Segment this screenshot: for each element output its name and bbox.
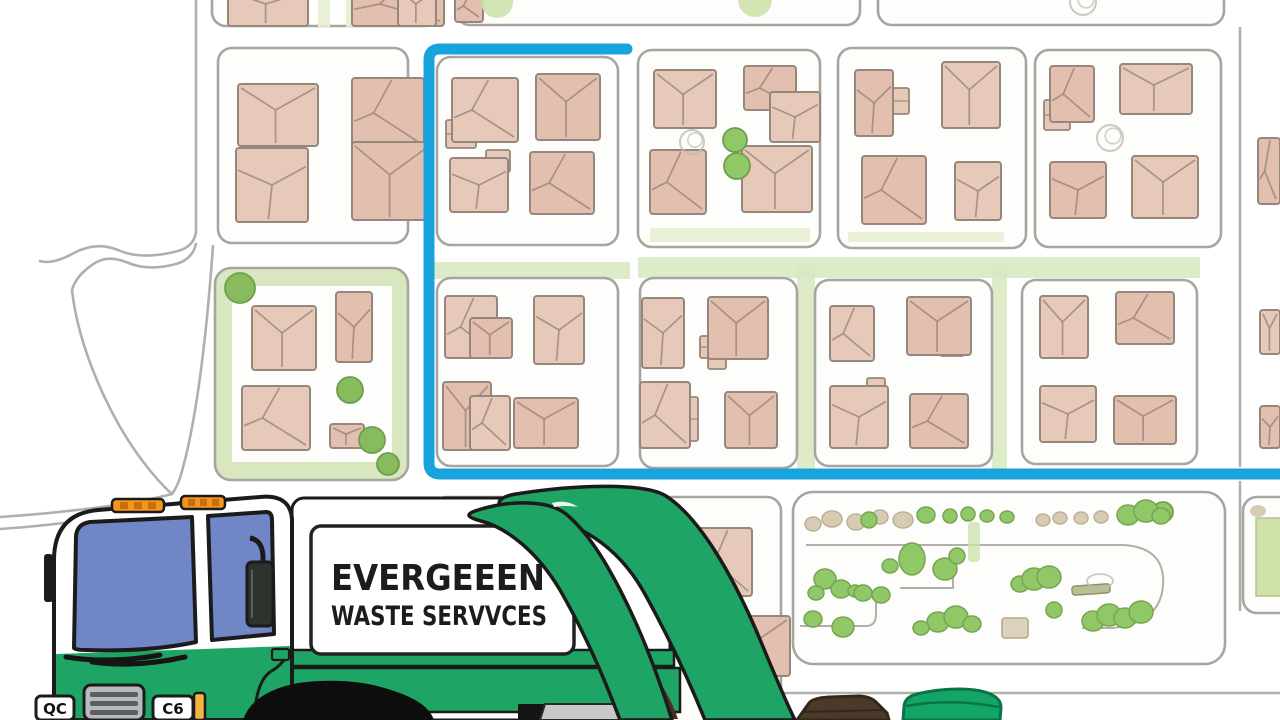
map-block	[878, 0, 1224, 25]
park-tree	[808, 586, 824, 600]
brown-waste-bin	[797, 696, 889, 720]
license-plate-left-text: QC	[43, 700, 67, 718]
illustration-stage: EVERGEEEN WASTE SERVVCES	[0, 0, 1280, 720]
roof-light-tick	[120, 502, 128, 509]
door-handle	[272, 649, 289, 660]
park-shrub-tan	[822, 511, 842, 527]
license-plate-right-text: C6	[162, 700, 183, 718]
park-tree	[832, 617, 854, 637]
park-tree	[1037, 566, 1061, 588]
roof-ridge	[1269, 427, 1270, 445]
park-shrub-tan	[805, 517, 821, 531]
park-tree	[861, 512, 877, 528]
park-kiosk	[1002, 618, 1028, 638]
grass-strip	[427, 262, 630, 279]
park-tree	[917, 507, 935, 523]
park-grass-strip	[968, 522, 980, 562]
grass-tint	[318, 0, 330, 27]
tree	[359, 427, 385, 453]
park-tree	[963, 616, 981, 632]
roof-light-tick	[212, 499, 219, 506]
windshield	[74, 517, 196, 650]
roof-light-tick	[188, 499, 195, 506]
park-tree	[899, 543, 925, 575]
grass-strip	[992, 265, 1007, 472]
grille-slat	[90, 692, 138, 697]
park-tree	[949, 548, 965, 564]
grille-slat	[90, 701, 138, 706]
map-block	[456, 0, 860, 25]
company-name: EVERGEEEN	[331, 558, 545, 599]
house	[455, 0, 483, 22]
park-shrub-tan	[1036, 514, 1050, 526]
park-tree	[1152, 508, 1170, 524]
tree	[377, 453, 399, 475]
left-mirror-stub	[44, 554, 53, 602]
tree	[337, 377, 363, 403]
park-shrub-tan	[1053, 512, 1067, 524]
park-shrub-tan	[893, 512, 913, 528]
grass-strip	[638, 257, 1200, 278]
grass-tint	[848, 232, 1004, 242]
road	[72, 290, 172, 494]
park-shrub-tan	[1094, 511, 1108, 523]
park-tree	[913, 621, 929, 635]
park-shrub-tan	[1074, 512, 1088, 524]
roof-light-tick	[200, 499, 207, 506]
road	[172, 246, 213, 494]
road	[40, 232, 196, 262]
neighborhood-map-illustration: EVERGEEEN WASTE SERVVCES	[0, 0, 1280, 720]
roof-light-tick	[148, 502, 156, 509]
park-tree	[961, 507, 975, 521]
park-tree	[943, 509, 957, 523]
park-tree	[980, 510, 994, 522]
side-yard	[1256, 518, 1280, 596]
house	[352, 78, 424, 148]
park-tree	[872, 587, 890, 603]
park-tree	[1046, 602, 1062, 618]
tree	[723, 128, 747, 152]
side-shrub	[1250, 505, 1266, 517]
park-tree	[882, 559, 898, 573]
grille-slat	[90, 710, 138, 715]
grass-strip	[797, 265, 815, 472]
park-tree	[1129, 601, 1153, 623]
corner-marker-light	[194, 693, 205, 720]
park-tree	[854, 585, 872, 601]
roof-light-tick	[134, 502, 142, 509]
company-subtitle: WASTE SERVVCES	[331, 601, 547, 632]
park-tree	[1000, 511, 1014, 523]
grass-tint	[650, 228, 810, 242]
park-tree	[804, 611, 822, 627]
tree	[225, 273, 255, 303]
garbage-truck: EVERGEEEN WASTE SERVVCES	[36, 486, 795, 720]
side-mirror	[247, 562, 273, 626]
tree	[724, 153, 750, 179]
